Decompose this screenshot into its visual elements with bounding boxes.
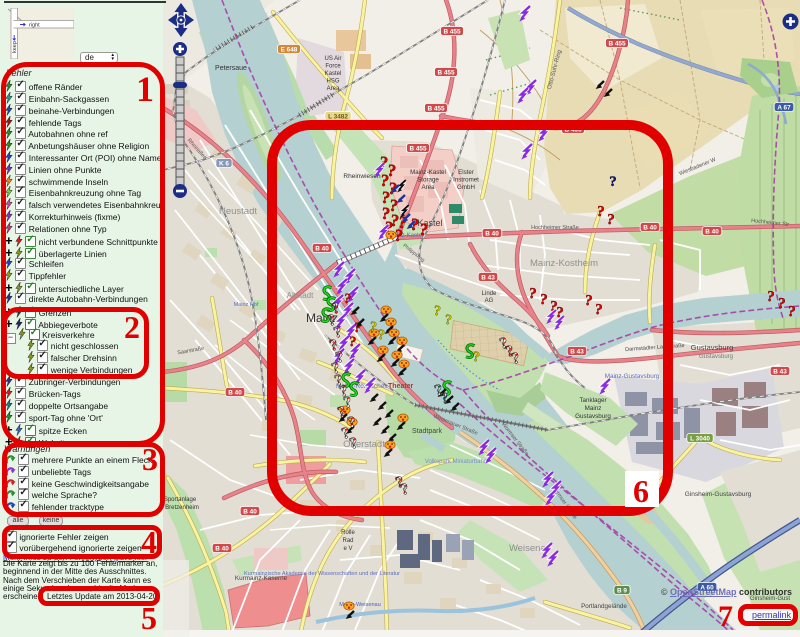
svg-text:Petersaue: Petersaue xyxy=(215,65,247,72)
svg-text:US Air: US Air xyxy=(324,56,341,62)
svg-text:B 9: B 9 xyxy=(617,588,627,595)
svg-text:A 67: A 67 xyxy=(777,105,791,112)
svg-text:e V: e V xyxy=(343,546,352,552)
svg-text:B 40: B 40 xyxy=(228,390,242,397)
svg-text:Portlandgelände: Portlandgelände xyxy=(581,603,627,610)
svg-text:Force: Force xyxy=(325,64,341,70)
svg-text:E 648: E 648 xyxy=(281,47,298,54)
svg-text:Mainz Hbf: Mainz Hbf xyxy=(234,302,259,308)
svg-text:Gustavsburg: Gustavsburg xyxy=(691,343,734,352)
svg-text:HSG: HSG xyxy=(326,79,339,85)
svg-text:keep: keep xyxy=(12,41,18,53)
svg-text:B 43: B 43 xyxy=(773,369,787,376)
svg-text:B 455: B 455 xyxy=(427,106,444,113)
svg-text:Gustavsburg: Gustavsburg xyxy=(699,354,733,360)
svg-text:Area: Area xyxy=(327,86,340,92)
svg-text:B 40: B 40 xyxy=(243,509,257,516)
svg-text:Neustadt: Neustadt xyxy=(219,206,257,217)
svg-text:Kurmainz-Kaserne: Kurmainz-Kaserne xyxy=(235,575,288,582)
svg-text:Rad: Rad xyxy=(342,538,353,544)
svg-text:right: right xyxy=(29,23,40,29)
svg-text:B 455: B 455 xyxy=(437,70,454,77)
svg-text:Kastel: Kastel xyxy=(325,71,342,77)
svg-text:L 3040: L 3040 xyxy=(690,436,710,443)
svg-text:Sportanlage: Sportanlage xyxy=(164,497,197,503)
svg-text:B 40: B 40 xyxy=(705,229,719,236)
svg-text:Ginsheim-Gustavsburg: Ginsheim-Gustavsburg xyxy=(685,491,752,498)
svg-text:B 455: B 455 xyxy=(608,41,625,48)
svg-text:K 6: K 6 xyxy=(219,161,229,168)
svg-text:B 455: B 455 xyxy=(443,29,460,36)
svg-text:Rolle: Rolle xyxy=(341,530,355,536)
svg-text:Bretzenheim: Bretzenheim xyxy=(165,505,199,511)
svg-text:B 40: B 40 xyxy=(215,546,229,553)
